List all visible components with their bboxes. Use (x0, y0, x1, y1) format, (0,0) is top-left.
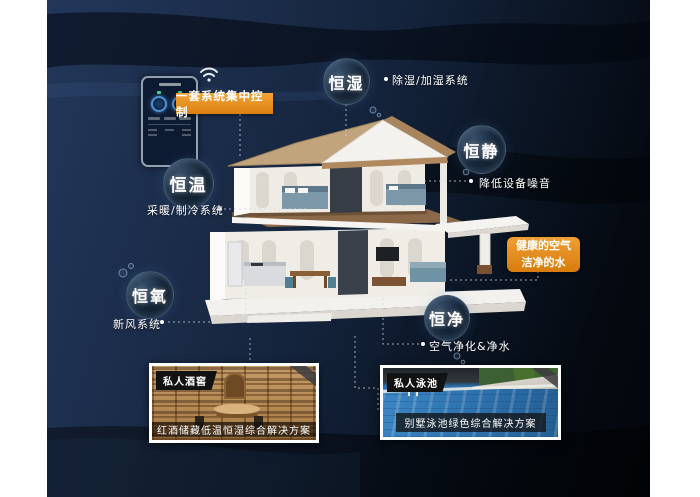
phone-titlebar (159, 83, 181, 86)
phone-menu-row (148, 129, 191, 131)
pool-caption: 别墅泳池绿色综合解决方案 (396, 413, 546, 432)
wine-cellar-card: 私人酒窖 红酒储藏低温恒湿综合解决方案 (149, 363, 319, 443)
wine-cellar-photo: 私人酒窖 红酒储藏低温恒湿综合解决方案 (152, 366, 316, 440)
note-purification: 空气净化&净水 (429, 338, 511, 354)
bubble-humidity: 恒湿 (323, 58, 370, 105)
note-fresh-air: 新风系统 (113, 316, 161, 332)
healthy-air-water-box: 健康的空气 洁净的水 (507, 237, 580, 272)
pool-tag: 私人泳池 (387, 373, 448, 392)
bubble-oxygen: 恒氧 (126, 271, 174, 319)
note-noise-reduction: 降低设备噪音 (479, 175, 551, 191)
highlight-line2: 洁净的水 (522, 255, 566, 272)
bubble-quiet: 恒静 (457, 125, 506, 174)
wine-cellar-tag: 私人酒窖 (156, 371, 217, 390)
wine-cellar-caption: 红酒储藏低温恒湿综合解决方案 (152, 422, 316, 437)
pool-card: 私人泳池 别墅泳池绿色综合解决方案 (380, 365, 561, 440)
note-heating-cooling: 采暖/制冷系统 (147, 202, 224, 218)
pool-photo: 私人泳池 别墅泳池绿色综合解决方案 (383, 368, 558, 437)
note-humidity-system: 除湿/加湿系统 (392, 72, 469, 88)
central-control-tag: 一套系统集中控制 (176, 93, 273, 114)
bubble-purity: 恒净 (424, 295, 470, 341)
phone-knob-left (151, 96, 167, 112)
highlight-line1: 健康的空气 (516, 238, 571, 255)
